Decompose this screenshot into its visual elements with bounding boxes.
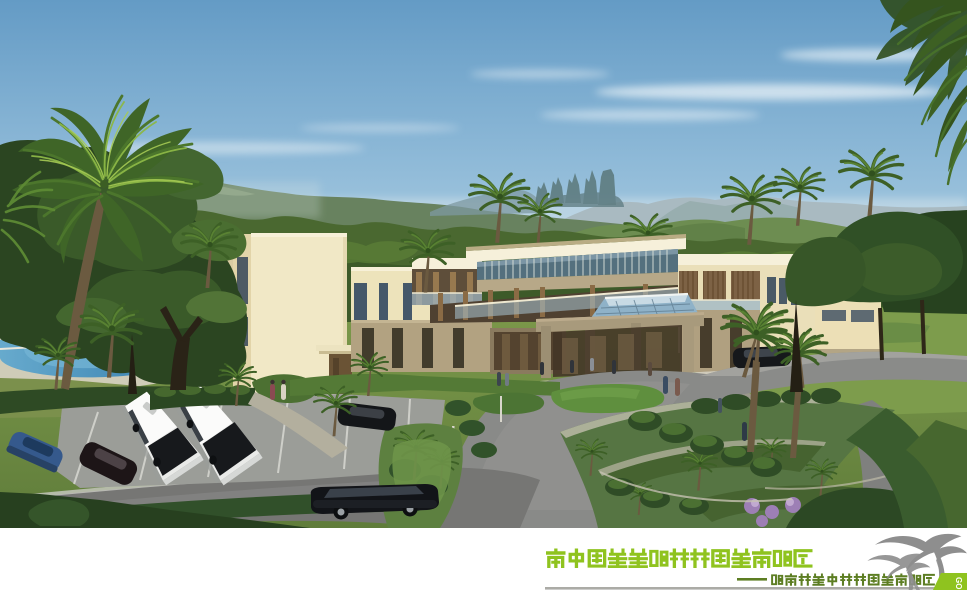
svg-text:GO: GO <box>954 577 963 589</box>
